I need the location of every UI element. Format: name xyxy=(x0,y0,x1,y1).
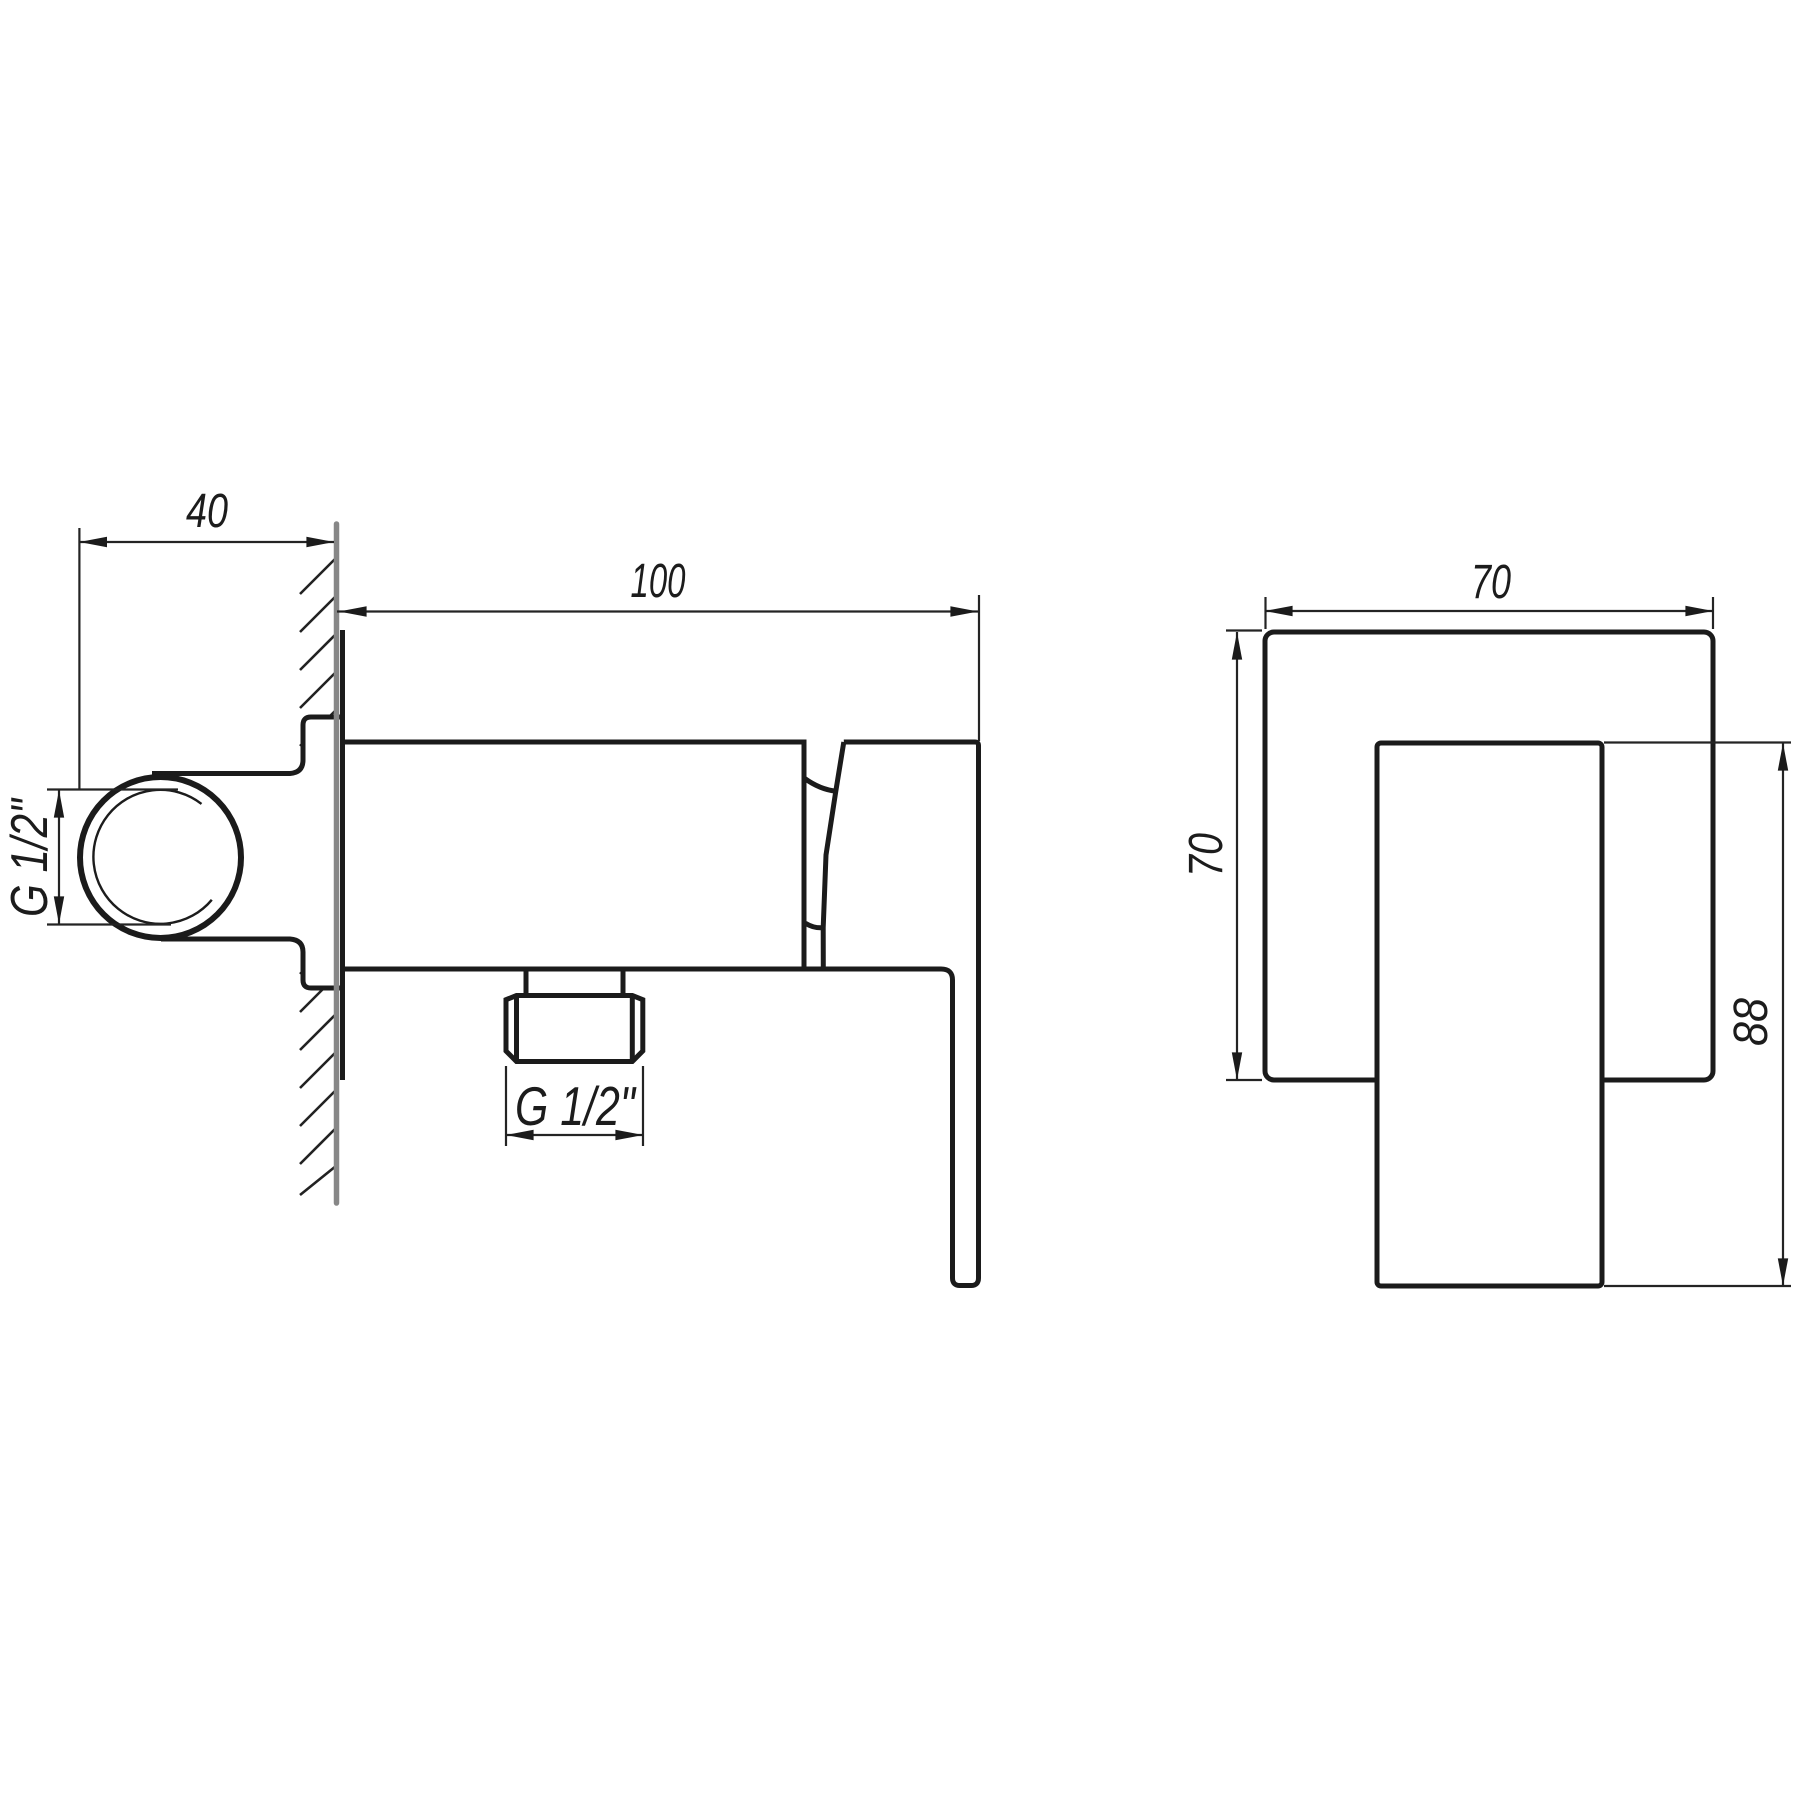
svg-text:70: 70 xyxy=(1180,833,1233,877)
svg-text:40: 40 xyxy=(186,485,228,538)
svg-text:G 1/2": G 1/2" xyxy=(1,797,59,917)
svg-text:G 1/2": G 1/2" xyxy=(515,1075,637,1137)
svg-text:88: 88 xyxy=(1725,998,1778,1046)
svg-text:70: 70 xyxy=(1471,556,1511,609)
svg-text:100: 100 xyxy=(631,555,686,608)
